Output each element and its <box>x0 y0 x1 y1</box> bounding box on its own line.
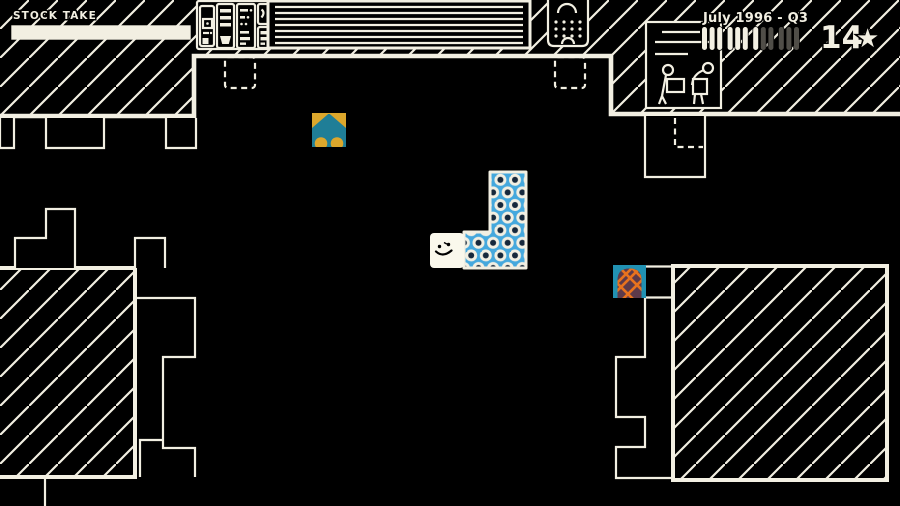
warehouse-game-viewport[interactable]: STOCK TAKE July 1996 - Q3 14 ★ <box>0 0 900 506</box>
stock-take-progress-fill <box>12 26 190 39</box>
tally-mark-month-10 <box>779 27 784 50</box>
tally-mark-month-11 <box>786 27 791 50</box>
player-character <box>430 233 464 268</box>
tally-mark-month-1 <box>702 27 707 50</box>
speaker-unit <box>548 0 588 46</box>
stock-take-label: STOCK TAKE <box>13 10 97 22</box>
shelf-console <box>197 1 271 49</box>
tally-mark-month-5 <box>735 27 740 50</box>
room-step-structure <box>135 238 165 268</box>
wall-notch <box>46 118 104 148</box>
tally-mark-month-6 <box>743 27 748 50</box>
tally-mark-month-9 <box>768 27 773 50</box>
wall-notch <box>0 118 14 148</box>
wall-notch <box>166 118 196 148</box>
tally-mark-month-3 <box>717 27 722 50</box>
shutter-door <box>268 1 530 48</box>
tally-mark-month-8 <box>761 27 766 50</box>
star-icon: ★ <box>856 24 879 54</box>
tally-mark-month-7 <box>753 27 758 50</box>
calendar-date-label: July 1996 - Q3 <box>702 11 808 26</box>
game-scene: STOCK TAKE July 1996 - Q3 14 ★ <box>0 0 900 506</box>
product-tile-teal-arrow <box>312 113 346 150</box>
wall-notch <box>645 116 705 177</box>
tally-mark-month-4 <box>728 27 733 50</box>
tally-mark-month-12 <box>794 27 799 50</box>
tally-mark-month-2 <box>710 27 715 50</box>
